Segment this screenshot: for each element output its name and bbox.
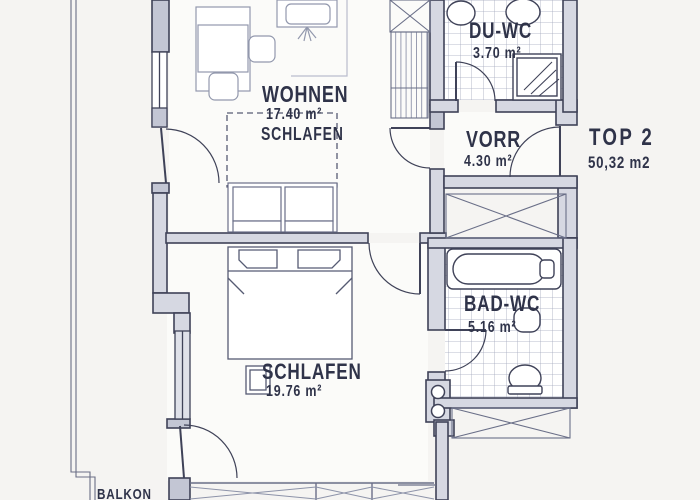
chair: [249, 36, 275, 62]
unit-area: 50,32 m2: [588, 154, 650, 171]
wall-duwc-bottom-left: [430, 100, 458, 112]
sofa: [228, 183, 337, 232]
wall-right-duwc: [563, 0, 577, 112]
schlafen-name: SCHLAFEN: [262, 361, 362, 383]
wall-balcony-door-jamb-top: [167, 419, 190, 428]
balkon-name: BALKON: [97, 487, 152, 500]
schlafen-area: 19.76 m²: [266, 384, 322, 400]
wall-badwc-bottom: [434, 398, 577, 408]
wall-schlafen-badwc-upper: [428, 243, 445, 330]
vorr-area: 4.30 m²: [464, 154, 512, 170]
toilet-badwc: [508, 365, 542, 394]
wohnen-subname: SCHLAFEN: [261, 125, 344, 143]
wall-badwc-top: [428, 238, 577, 248]
wall-left-mid: [153, 193, 167, 293]
wall-right-badwc: [563, 238, 577, 408]
wall-balcony-door-jamb-bottom: [169, 478, 190, 500]
dining-table: [198, 25, 248, 72]
window-schlafen: [175, 331, 190, 419]
wall-wohnen-vorr: [430, 169, 444, 233]
wall-left-lower: [174, 313, 190, 333]
wall-divider-wohnen-schlafen: [166, 233, 368, 243]
bathtub: [447, 249, 561, 289]
tv: [286, 4, 330, 24]
window-wohnen: [152, 52, 167, 127]
duwc-name: DU-WC: [469, 20, 532, 42]
wall-door1-jamb: [152, 183, 169, 193]
chair: [209, 73, 238, 100]
wall-vorr-bottom: [444, 176, 577, 188]
wohnen-area: 17.40 m²: [266, 107, 322, 123]
unit-label: TOP 2: [589, 126, 654, 150]
vorr-name: VORR: [466, 128, 521, 151]
wardrobe-striped: [391, 32, 428, 118]
closet-vorr-x-box: [446, 194, 566, 238]
balcony-outline: [71, 0, 95, 500]
badwc-name: BAD-WC: [464, 293, 540, 315]
pillow: [239, 250, 277, 268]
balcony-railing: [190, 483, 436, 500]
pillow: [298, 250, 340, 268]
floor-plan: WOHNEN 17.40 m² SCHLAFEN DU-WC 3.70 m² V…: [0, 0, 700, 500]
wall-wohnen-duwc: [430, 0, 444, 105]
duwc-area: 3.70 m²: [473, 46, 521, 62]
closet-bottom-x-box: [452, 408, 570, 438]
wall-right-of-schlafen-bottom: [436, 422, 448, 500]
wohnen-name: WOHNEN: [262, 83, 348, 106]
floor-plan-drawing: [0, 0, 700, 500]
wall-left-top-jamb: [152, 0, 169, 52]
wall-left-step: [153, 293, 189, 313]
badwc-area: 5.16 m²: [468, 320, 516, 336]
wall-duwc-bottom-right: [496, 100, 558, 112]
